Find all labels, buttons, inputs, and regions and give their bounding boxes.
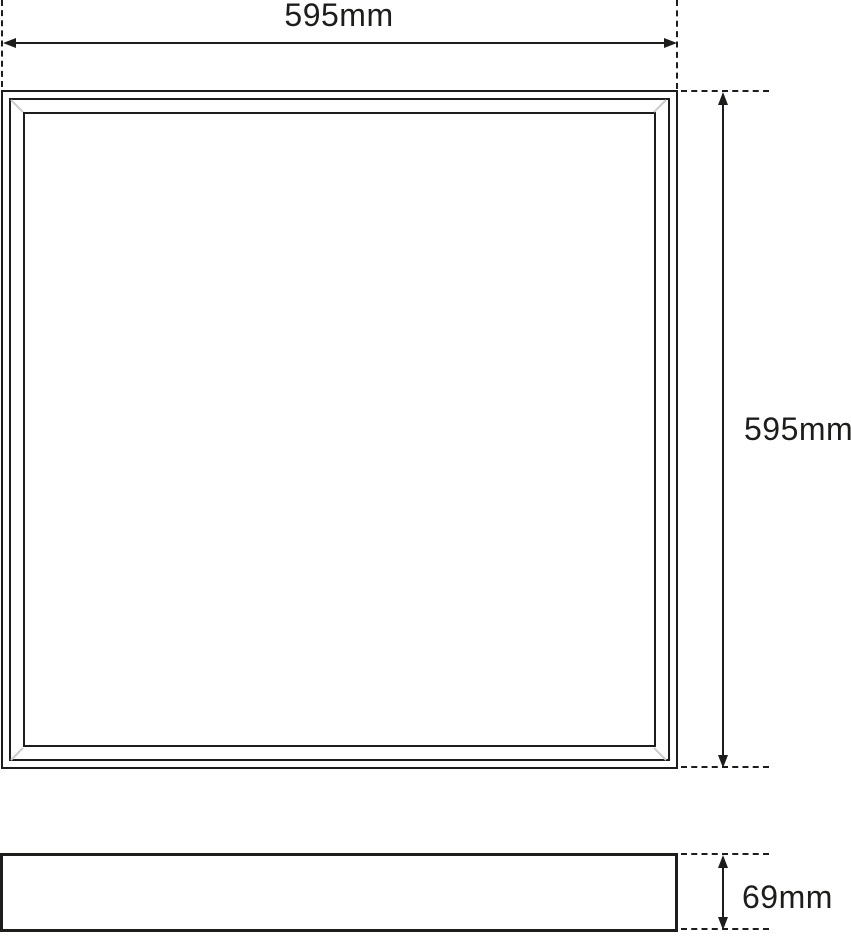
side-view-profile bbox=[0, 853, 678, 932]
depth-arrowhead-down-icon bbox=[718, 917, 728, 930]
dimension-drawing: 595mm 595mm 69mm bbox=[0, 0, 851, 939]
arrowhead-right-icon bbox=[664, 38, 677, 48]
arrowhead-up-icon bbox=[718, 92, 728, 105]
height-dimension-label: 595mm bbox=[744, 408, 851, 450]
height-dimension-line bbox=[722, 103, 724, 758]
arrowhead-left-icon bbox=[3, 38, 16, 48]
front-view-inner-frame bbox=[23, 112, 656, 747]
depth-arrowhead-up-icon bbox=[718, 855, 728, 868]
width-dimension-line bbox=[12, 42, 667, 44]
width-dimension-label: 595mm bbox=[0, 0, 678, 36]
depth-dimension-label: 69mm bbox=[742, 876, 833, 918]
depth-dimension-line bbox=[722, 863, 724, 923]
arrowhead-down-icon bbox=[718, 755, 728, 768]
